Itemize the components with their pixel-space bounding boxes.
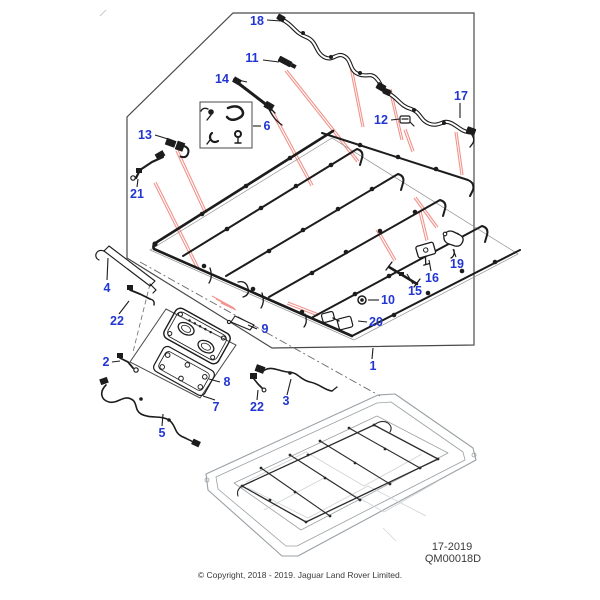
callout-15: 15 [408, 285, 422, 298]
copyright-notice: © Copyright, 2018 - 2019. Jaguar Land Ro… [198, 570, 402, 580]
part-16-bracket [415, 242, 438, 266]
part-12-clip [400, 116, 414, 126]
callout-19: 19 [450, 258, 464, 271]
assembly-outline-box [127, 13, 474, 348]
callout-21: 21 [130, 188, 144, 201]
callout-7: 7 [213, 401, 220, 414]
callout-12: 12 [374, 114, 388, 127]
callout-leader-lines [107, 20, 460, 426]
callout-9: 9 [262, 323, 269, 336]
part-21-bracket [131, 150, 166, 180]
callout-22: 22 [250, 401, 264, 414]
callout-17: 17 [454, 90, 468, 103]
main-diagram-svg [0, 0, 600, 600]
junction-plate [162, 306, 233, 366]
junction-plate-box-7 [130, 306, 236, 398]
callout-5: 5 [159, 427, 166, 440]
part-10-grommet [358, 296, 366, 304]
callout-1: 1 [370, 360, 377, 373]
callout-2: 2 [103, 356, 110, 369]
battery-tray [205, 394, 476, 556]
callout-4: 4 [104, 282, 111, 295]
callout-13: 13 [138, 129, 152, 142]
callout-6: 6 [264, 120, 271, 133]
plate-code: 17-2019 [432, 541, 472, 553]
part-3-harness [255, 364, 337, 391]
part-2-bracket [117, 353, 138, 372]
callout-18: 18 [250, 15, 264, 28]
part-22-bracket-right [250, 373, 266, 392]
part-22-bracket-left [127, 285, 154, 305]
callout-8: 8 [224, 376, 231, 389]
drawing-number: QM00018D [425, 553, 481, 565]
callout-14: 14 [215, 73, 229, 86]
parts-diagram-page: 1811146121713214222587223910201516191 17… [0, 0, 600, 600]
callout-10: 10 [381, 294, 395, 307]
clip-detail-box-6 [200, 102, 252, 148]
callout-11: 11 [245, 52, 258, 65]
callout-16: 16 [425, 272, 439, 285]
callout-22: 22 [110, 315, 124, 328]
main-harness-mesh [152, 107, 520, 336]
callout-3: 3 [283, 395, 290, 408]
callout-20: 20 [369, 316, 383, 329]
part-11-connector [278, 56, 298, 70]
part-13-clip [163, 137, 191, 159]
